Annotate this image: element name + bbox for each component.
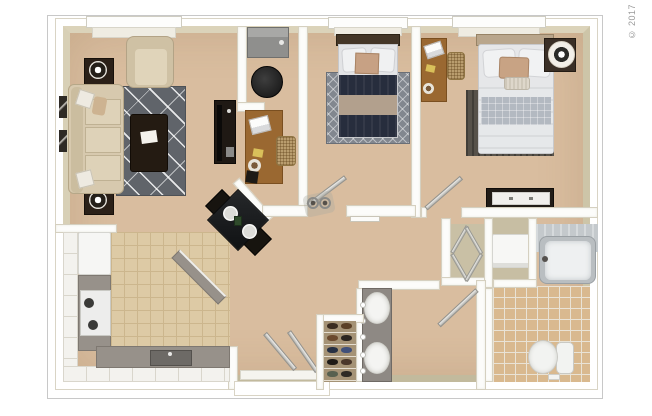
open-door-slab: [350, 216, 380, 222]
bed1-throw: [339, 95, 397, 115]
throw-pillow: [75, 169, 94, 188]
accent-pillow: [355, 53, 380, 75]
sofa: [68, 84, 124, 194]
entry-threshold: [240, 370, 322, 380]
decor-item: [226, 147, 234, 157]
vanity-knob: [360, 302, 366, 308]
tub-faucet: [542, 256, 548, 262]
kitchen-cabinets-bottom: [63, 366, 230, 382]
dresser-handle: [509, 197, 513, 200]
coffee-mug: [423, 83, 434, 94]
vanity-knob: [360, 334, 366, 340]
shoes: [341, 359, 352, 365]
notepad: [252, 148, 263, 158]
plate: [242, 224, 257, 239]
tv-stand: [214, 100, 236, 164]
nightstand-lamp: [548, 41, 575, 68]
dresser-handle: [529, 197, 533, 200]
bathroom1-wall: [476, 280, 486, 390]
master-bed: [478, 44, 554, 154]
cabinet-knob: [279, 40, 284, 45]
shoes: [341, 347, 352, 353]
refrigerator: [78, 232, 111, 275]
wall-art: [59, 130, 67, 152]
shoes: [327, 347, 338, 353]
papers: [140, 130, 158, 144]
bedroom-divider-wall: [411, 26, 421, 218]
washer: [492, 234, 530, 268]
nook-wall: [237, 26, 247, 112]
hall-fixture-ring: [319, 197, 331, 209]
shoes: [327, 359, 338, 365]
hall-wall: [461, 207, 598, 218]
storage-cabinet: [247, 27, 289, 58]
master-desk: [421, 38, 447, 102]
plaid-blanket: [481, 97, 551, 125]
copyright-text: © 2017: [627, 4, 637, 40]
shoe-closet-wall: [316, 314, 324, 390]
shoes: [341, 335, 352, 341]
stove-burner: [84, 298, 94, 308]
laptop: [423, 41, 444, 60]
hall-wall: [262, 205, 308, 217]
floor-plan-image: © 2017: [0, 0, 652, 416]
bed1: [338, 44, 398, 138]
bathtub: [539, 236, 596, 284]
wall-art: [59, 96, 67, 118]
vanity-knob: [360, 368, 366, 374]
armchair-cushion: [135, 49, 167, 85]
laptop: [248, 115, 271, 135]
armchair: [126, 36, 174, 88]
tv-screen: [217, 105, 222, 161]
stove-burner: [88, 320, 98, 330]
table-lamp: [89, 61, 107, 79]
sofa-cushion: [85, 127, 121, 153]
coffee-table: [130, 114, 168, 172]
bedroom1-left-wall: [298, 26, 308, 206]
shoes: [327, 335, 338, 341]
shoes: [341, 323, 352, 329]
desk-chair: [276, 136, 296, 166]
hall-fixture-ring: [307, 197, 319, 209]
bathtub-basin: [545, 241, 591, 280]
notepad: [425, 64, 435, 73]
shoes: [327, 323, 338, 329]
vanity-knob: [360, 352, 366, 358]
sink-basin: [364, 292, 390, 324]
ribbed-pillow: [504, 77, 530, 90]
dresser-front: [492, 192, 550, 205]
toilet-tank: [556, 342, 574, 374]
kitchen-cabinets-left: [63, 232, 78, 382]
master-bath-wall: [493, 279, 537, 288]
bath-fixture: [548, 374, 560, 380]
shoe-rack: [324, 321, 356, 382]
dresser: [486, 188, 554, 208]
shoes: [327, 371, 338, 377]
faucet: [168, 352, 172, 356]
master-desk-chair: [447, 52, 465, 80]
sink-basin: [364, 342, 390, 374]
decor-item: [227, 109, 231, 113]
toilet-bowl: [528, 340, 558, 374]
shoes: [341, 371, 352, 377]
round-chair: [251, 66, 283, 98]
centerpiece: [234, 216, 242, 226]
desk-item: [245, 170, 259, 184]
